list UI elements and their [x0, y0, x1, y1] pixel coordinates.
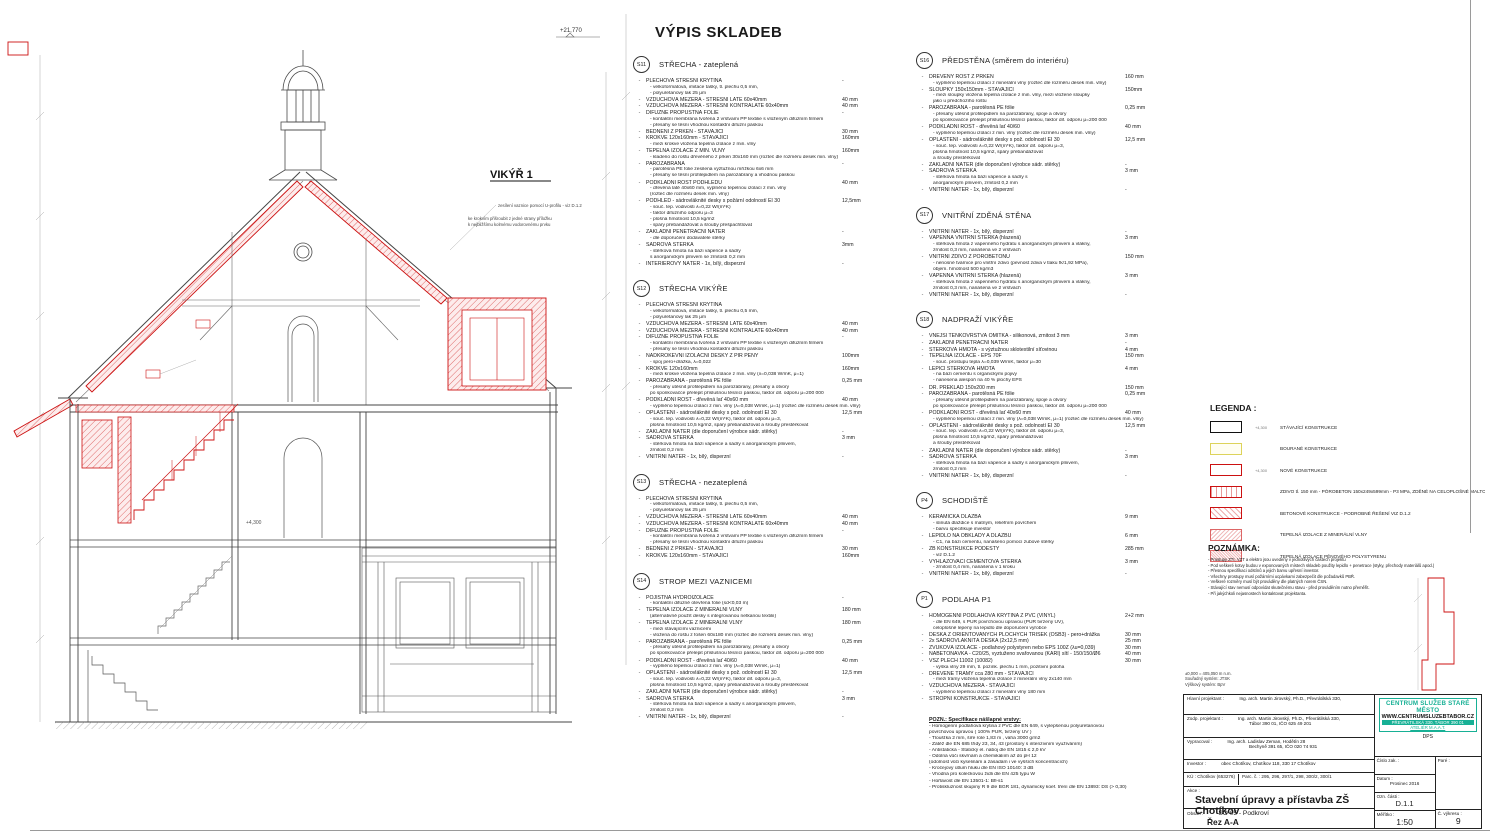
- item-label: DŘ. PŘEKLAD 150x200 mm: [929, 385, 1125, 392]
- item-dash: -: [916, 333, 929, 340]
- logo-frame: CENTRUM SLUŽEB STARÉ MĚSTO WWW.CENTRUMSL…: [1379, 698, 1477, 732]
- composition-item: -ZÁKLADNÍ NÁTĚR (dle doporučení výrobce …: [916, 162, 1208, 169]
- composition-item: -OPLÁŠTĚNÍ - sádrovláknité desky s pož. …: [916, 137, 1208, 144]
- composition-item: -VNITŘNÍ NÁTĚR - 1x, bílý, disperzní-: [916, 571, 1208, 578]
- composition-item: -VZDUCHOVÁ MEZERA - STŘEŠNÍ LATĚ 60x40mm…: [633, 321, 925, 328]
- composition-item: -PODKLADNÍ ROŠT - dřevěná lať 40x60 mm40…: [916, 410, 1208, 417]
- composition-header: S11STŘECHA - zateplená: [633, 56, 925, 73]
- cislo-label: Číslo zak. :: [1377, 758, 1400, 763]
- row-investor: Investor : obec Chotíkov, Chotíkov 118, …: [1184, 760, 1374, 774]
- datum-line-3: Výškový systém: BpV: [1185, 682, 1232, 687]
- composition-item: -PODHLED - sádrovláknité desky s požární…: [633, 198, 925, 205]
- composition-item: -VZDUCHOVÁ MEZERA - STŘEŠNÍ LATĚ 60x40mm…: [633, 97, 925, 104]
- logo-dps: DPS: [1379, 734, 1477, 740]
- item-value: 12,5 mm: [842, 670, 925, 677]
- composition-item: -PODKLADNÍ ROŠT - dřevěná lať 40/6040 mm: [633, 658, 925, 665]
- item-label: NADKROKEVNÍ IZOLAČNÍ DESKY Z PIR PĚNY: [646, 353, 842, 360]
- item-value: -: [1125, 448, 1208, 455]
- item-dash: -: [916, 613, 929, 620]
- compositions-column-2: S16PŘEDSTĚNA (směrem do interiéru)-DŘEVĚ…: [916, 52, 1208, 791]
- item-value: -: [1125, 571, 1208, 578]
- item-value: 4 mm: [1125, 347, 1208, 354]
- legend-swatch-existing: [1210, 421, 1242, 433]
- composition-header: S13STŘECHA - nezateplená: [633, 474, 925, 491]
- item-value: 0,25 mm: [842, 378, 925, 385]
- item-value: -: [842, 595, 925, 602]
- item-value: 40 mm: [1125, 410, 1208, 417]
- item-dash: -: [916, 229, 929, 236]
- svg-text:+21,770: +21,770: [560, 28, 583, 34]
- pare-cell: Paré :: [1436, 757, 1481, 810]
- item-label: ZÁKLADNÍ NÁTĚR (dle doporučení výrobce s…: [646, 689, 842, 696]
- item-value: 160mm: [842, 148, 925, 155]
- legend-swatch-concrete: [1210, 507, 1242, 519]
- item-value: 3 mm: [1125, 333, 1208, 340]
- item-dash: -: [916, 137, 929, 144]
- item-value: 40 mm: [842, 521, 925, 528]
- item-dash: -: [916, 448, 929, 455]
- item-dash: -: [633, 198, 646, 205]
- item-value: 160 mm: [1125, 74, 1208, 81]
- item-value: 180 mm: [842, 607, 925, 614]
- legend-item: ZDIVO tl. 150 mm - PÓROBETON 150x249x599…: [1210, 486, 1485, 498]
- composition-item: -KROKVE 120x160mm - STÁVAJÍCÍ160mm: [633, 135, 925, 142]
- composition-item: -ZÁKLADNÍ NÁTĚR (dle doporučení výrobce …: [633, 689, 925, 696]
- item-label: VNITŘNÍ NÁTĚR - 1x, bílý, disperzní: [929, 187, 1125, 194]
- item-dash: -: [633, 135, 646, 142]
- item-dash: -: [633, 103, 646, 110]
- item-value: 12,5 mm: [1125, 423, 1208, 430]
- composition-item: -PODKLADNÍ ROŠT - dřevěná lať 40/6040 mm: [916, 124, 1208, 131]
- item-dash: -: [916, 473, 929, 480]
- composition-S16: S16PŘEDSTĚNA (směrem do interiéru)-DŘEVĚ…: [916, 52, 1208, 194]
- item-value: 0,25 mm: [842, 639, 925, 646]
- composition-item: -NADKROKEVNÍ IZOLAČNÍ DESKY Z PIR PĚNY10…: [633, 353, 925, 360]
- legend-label: NOVÉ KONSTRUKCE: [1280, 468, 1327, 473]
- item-label: VNITŘNÍ NÁTĚR - 1x, bílý, disperzní: [929, 292, 1125, 299]
- item-dash: -: [633, 714, 646, 721]
- item-value: 40 mm: [842, 103, 925, 110]
- item-dash: -: [916, 571, 929, 578]
- item-dash: -: [916, 683, 929, 690]
- item-dash: -: [633, 639, 646, 646]
- item-value: -: [1125, 292, 1208, 299]
- composition-badge: S16: [916, 52, 933, 69]
- composition-item: -TEPELNÁ IZOLACE Z MINERÁLNÍ VLNY180 mm: [633, 620, 925, 627]
- item-label: BEDNĚNÍ Z PRKEN - STÁVAJÍCÍ: [646, 546, 842, 553]
- obsah-value: SO 05 - Podkroví: [1218, 810, 1269, 817]
- legend-item: BOURANÉ KONSTRUKCE: [1210, 443, 1485, 455]
- item-dash: -: [633, 607, 646, 614]
- composition-item: -SÁDROVÁ STĚRKA3 mm: [633, 435, 925, 442]
- dormer: [448, 298, 546, 390]
- composition-item: -DIFÚZNĚ PROPUSTNÁ FOLIE-: [633, 334, 925, 341]
- item-label: SÁDROVÁ STĚRKA: [646, 435, 842, 442]
- item-label: PODHLED - sádrovláknité desky s požární …: [646, 198, 842, 205]
- composition-item: -VZDUCHOVÁ MEZERA - STŘEŠNÍ KONTRALATĚ 6…: [633, 521, 925, 528]
- item-dash: -: [916, 546, 929, 553]
- item-dash: -: [916, 410, 929, 417]
- legend-item: BETONOVÉ KONSTRUKCE - PODROBNÉ ŘEŠENÍ VI…: [1210, 507, 1485, 519]
- datum-info: ±0,000 = 405,050 m n.m. Souřadný systém:…: [1185, 671, 1232, 687]
- item-value: 40 mm: [842, 397, 925, 404]
- composition-item: -PAROZÁBRANA - parotěsná PE fólie0,25 mm: [916, 105, 1208, 112]
- item-value: -: [842, 454, 925, 461]
- parc-label: Parc. č. :: [1242, 774, 1260, 779]
- composition-item: -BEDNĚNÍ Z PRKEN - STÁVAJÍCÍ30 mm: [633, 129, 925, 136]
- item-label: ZÁKLADNÍ NÁTĚR (dle doporučení výrobce s…: [646, 429, 842, 436]
- composition-name: STROP MEZI VAZNICEMI: [659, 577, 752, 586]
- composition-item: -VNITŘNÍ ZDIVO Z PÓROBETONU150 mm: [916, 254, 1208, 261]
- composition-item: -ZÁKLADNÍ NÁTĚR (dle doporučení výrobce …: [633, 429, 925, 436]
- composition-item: -VZDUCHOVÁ MEZERA - STŘEŠNÍ KONTRALATĚ 6…: [633, 103, 925, 110]
- item-label: VNITŘNÍ NÁTĚR - 1x, bílý, disperzní: [929, 229, 1125, 236]
- item-label: PLECHOVÁ STŘEŠNÍ KRYTINA: [646, 78, 842, 85]
- item-label: VYHLAZOVACÍ CEMENTOVÁ STĚRKA: [929, 559, 1125, 566]
- item-dash: -: [916, 651, 929, 658]
- item-dash: -: [916, 632, 929, 639]
- item-label: VÁPENNÁ VNITŘNÍ STĚRKA (hlazená): [929, 273, 1125, 280]
- item-dash: -: [916, 671, 929, 678]
- item-value: 9 mm: [1125, 514, 1208, 521]
- vypracoval-value-2: Bechyně 391 65, IČO 020 74 931: [1249, 744, 1371, 749]
- composition-item: -SÁDROVÁ STĚRKA3 mm: [916, 454, 1208, 461]
- item-label: PODKLADNÍ ROŠT - dřevěná lať 40/60: [929, 124, 1125, 131]
- composition-name: NADPRAŽÍ VIKÝŘE: [942, 315, 1013, 324]
- item-dash: -: [633, 528, 646, 535]
- composition-item: -POJISTNÁ HYDROIZOLACE-: [633, 595, 925, 602]
- composition-header: P1PODLAHA P1: [916, 591, 1208, 608]
- composition-item: -VNITŘNÍ NÁTĚR - 1x, bílý, disperzní-: [633, 454, 925, 461]
- page-title: VÝPIS SKLADEB: [655, 24, 782, 41]
- composition-item: -ŽB KONSTRUKCE PODESTY285 mm: [916, 546, 1208, 553]
- item-dash: -: [633, 378, 646, 385]
- row-hlavni-projektant: Hlavní projektant : Ing. arch. Martin Ji…: [1184, 695, 1374, 715]
- item-value: 150 mm: [1125, 385, 1208, 392]
- item-dash: -: [633, 110, 646, 117]
- legend-swatch-aerated: [1210, 486, 1242, 498]
- composition-item: -HOMOGENNÍ PODLAHOVÁ KRYTINA Z PVC (VINY…: [916, 613, 1208, 620]
- item-dash: -: [633, 435, 646, 442]
- item-value: 6 mm: [1125, 533, 1208, 540]
- item-value: 40 mm: [1125, 651, 1208, 658]
- item-label: PODKLADNÍ ROŠT PODHLEDU: [646, 180, 842, 187]
- floors: [55, 540, 572, 722]
- composition-item: -VZDUCHOVÁ MEZERA - STŘEŠNÍ LATĚ 60x40mm…: [633, 514, 925, 521]
- item-label: VZDUCHOVÁ MEZERA - STŘEŠNÍ KONTRALATĚ 60…: [646, 521, 842, 528]
- composition-header: P4SCHODIŠTĚ: [916, 492, 1208, 509]
- item-label: PLECHOVÁ STŘEŠNÍ KRYTINA: [646, 302, 842, 309]
- p1-note-line: - Protiskluznost skupiny R 9 dle BGR 181…: [929, 785, 1208, 791]
- item-dash: -: [916, 124, 929, 131]
- composition-name: STŘECHA - zateplená: [659, 60, 738, 69]
- item-label: SÁDROVÁ STĚRKA: [929, 168, 1125, 175]
- composition-item: -LEPÍCÍ STĚRKOVÁ HMOTA4 mm: [916, 366, 1208, 373]
- composition-item: -SÁDROVÁ STĚRKA3 mm: [916, 168, 1208, 175]
- item-value: 160mm: [842, 366, 925, 373]
- item-dash: -: [633, 328, 646, 335]
- facade-panels: [362, 548, 556, 712]
- item-label: STROPNÍ KONSTRUKCE - STÁVAJÍCÍ: [929, 696, 1125, 703]
- composition-item: -LEPIDLO NA OBKLADY A DLAŽBU6 mm: [916, 533, 1208, 540]
- hlavni-value: Ing. arch. Martin Jirovský, Ph.D., Převr…: [1239, 696, 1341, 701]
- row-obsah: Obsah : SO 05 - Podkroví Řez A-A: [1184, 809, 1374, 828]
- legend-label: STÁVAJÍCÍ KONSTRUKCE: [1280, 425, 1337, 430]
- svg-text:k nejbližšímu kolmému vodorovn: k nejbližšímu kolmému vodorovnému prvku: [468, 222, 551, 227]
- composition-item: -INTERIÉROVÝ NÁTĚR - 1x, bílý, disperzní…: [633, 261, 925, 268]
- item-label: LEPIDLO NA OBKLADY A DLAŽBU: [929, 533, 1125, 540]
- item-label: PODKLADNÍ ROŠT - dřevěná lať 40x60 mm: [646, 397, 842, 404]
- item-value: 3 mm: [1125, 273, 1208, 280]
- item-label: PAROZÁBRANA - parotěsná PE fólie: [929, 105, 1125, 112]
- item-value: -: [842, 261, 925, 268]
- item-dash: -: [633, 696, 646, 703]
- title-block: Hlavní projektant : Ing. arch. Martin Ji…: [1183, 694, 1482, 829]
- svg-text:VIKÝŘ 1: VIKÝŘ 1: [490, 168, 533, 181]
- item-dash: -: [916, 105, 929, 112]
- item-label: KROKVE 120x160mm - STÁVAJÍCÍ: [646, 135, 842, 142]
- item-dash: -: [916, 533, 929, 540]
- item-value: 3mm: [842, 242, 925, 249]
- composition-item: -DŘ. PŘEKLAD 150x200 mm150 mm: [916, 385, 1208, 392]
- new-staircase: [82, 404, 238, 523]
- composition-item: -DŘEVĚNÝ ROŠT Z PRKEN160 mm: [916, 74, 1208, 81]
- legend-label: TEPELNÁ IZOLACE Z MINERÁLNÍ VLNY: [1280, 532, 1367, 537]
- title-block-right: CENTRUM SLUŽEB STARÉ MĚSTO WWW.CENTRUMSL…: [1375, 695, 1481, 828]
- item-dash: -: [633, 521, 646, 528]
- ku-label: KÚ :: [1187, 774, 1196, 779]
- item-label: ZVUKOVÁ IZOLACE - podlahový polystyren n…: [929, 645, 1125, 652]
- item-value: -: [842, 161, 925, 168]
- item-label: NABETONÁVKA - C20/25, vyztuženo svařovan…: [929, 651, 1125, 658]
- legend-label: ZDIVO tl. 150 mm - PÓROBETON 150x249x599…: [1280, 489, 1485, 494]
- elevation-mark-top: +21,770: [556, 28, 600, 37]
- composition-item: -TEPELNÁ IZOLACE - EPS 70F150 mm: [916, 353, 1208, 360]
- item-label: VÁPENNÁ VNITŘNÍ STĚRKA (hlazená): [929, 235, 1125, 242]
- item-value: -: [842, 229, 925, 236]
- elevation-mark-mid: +4,300: [246, 520, 262, 526]
- item-label: DŘEVĚNÉ TRÁMY cca 280 mm - STÁVAJÍCÍ: [929, 671, 1125, 678]
- item-label: TEPELNÁ IZOLACE Z MINERÁLNÍ VLNY: [646, 607, 842, 614]
- item-label: 2x SÁDROVLÁKNITÁ DESKA (2x12,5 mm): [929, 638, 1125, 645]
- item-label: ŽB KONSTRUKCE PODESTY: [929, 546, 1125, 553]
- composition-item: -OPLÁŠTĚNÍ - sádrovláknité desky s pož. …: [916, 423, 1208, 430]
- composition-item: -PAROZÁBRANA - parotěsná PE fólie0,25 mm: [633, 639, 925, 646]
- item-dash: -: [633, 689, 646, 696]
- item-dash: -: [916, 454, 929, 461]
- composition-item: -PAROZÁBRANA - parotěsná PE fólie0,25 mm: [633, 378, 925, 385]
- item-label: TEPELNÁ IZOLACE - EPS 70F: [929, 353, 1125, 360]
- item-dash: -: [633, 496, 646, 503]
- composition-name: SCHODIŠTĚ: [942, 496, 988, 505]
- item-dash: -: [633, 78, 646, 85]
- composition-badge: S12: [633, 280, 650, 297]
- item-label: HOMOGENNÍ PODLAHOVÁ KRYTINA Z PVC (VINYL…: [929, 613, 1125, 620]
- composition-item: -VNITŘNÍ NÁTĚR - 1x, bílý, disperzní-: [916, 187, 1208, 194]
- item-label: DŘEVĚNÝ ROŠT Z PRKEN: [929, 74, 1125, 81]
- composition-item: -DIFÚZNĚ PROPUSTNÁ FOLIE-: [633, 110, 925, 117]
- akce-label: Akce :: [1187, 788, 1200, 793]
- item-dash: -: [916, 366, 929, 373]
- title-block-left: Hlavní projektant : Ing. arch. Martin Ji…: [1184, 695, 1375, 828]
- meritko-value: 1:50: [1377, 817, 1433, 827]
- item-label: PAROZÁBRANA - parotěsná PE fólie: [929, 391, 1125, 398]
- composition-item: -DIFÚZNĚ PROPUSTNÁ FOLIE-: [633, 528, 925, 535]
- item-dash: -: [916, 254, 929, 261]
- composition-badge: S17: [916, 207, 933, 224]
- composition-S12: S12STŘECHA VIKÝŘE-PLECHOVÁ STŘEŠNÍ KRYTI…: [633, 280, 925, 460]
- item-value: 3 mm: [842, 696, 925, 703]
- composition-badge: S11: [633, 56, 650, 73]
- item-dash: -: [916, 168, 929, 175]
- item-dash: -: [916, 162, 929, 169]
- arched-opening: [284, 438, 322, 538]
- item-value: 100mm: [842, 353, 925, 360]
- sheet-frame-bottom: [30, 830, 1490, 831]
- composition-S17: S17VNITŘNÍ ZDĚNÁ STĚNA-VNITŘNÍ NÁTĚR - 1…: [916, 207, 1208, 299]
- item-value: 3 mm: [1125, 168, 1208, 175]
- legend-title: LEGENDA :: [1210, 403, 1485, 413]
- row-akce: Akce : Stavební úpravy a přístavba ZŠ Ch…: [1184, 787, 1374, 809]
- item-label: SLOUPKY 150x150mm - STÁVAJÍCÍ: [929, 87, 1125, 94]
- svg-text:zesílení vaznice pomocí U-prof: zesílení vaznice pomocí U-profilu - viz …: [498, 203, 582, 208]
- item-dash: -: [916, 235, 929, 242]
- item-dash: -: [633, 242, 646, 249]
- zodp-label: Zodp. projektant :: [1187, 716, 1223, 721]
- item-value: -: [1125, 340, 1208, 347]
- item-dash: -: [916, 353, 929, 360]
- item-label: VNITŘNÍ NÁTĚR - 1x, bílý, disperzní: [646, 714, 842, 721]
- item-value: -: [842, 334, 925, 341]
- item-dash: -: [633, 148, 646, 155]
- pare-label: Paré :: [1438, 758, 1450, 763]
- section-cut-mark: [8, 42, 28, 55]
- item-label: ZÁKLADNÍ NÁTĚR (dle doporučení výrobce s…: [929, 162, 1125, 169]
- obsah-label: Obsah :: [1187, 811, 1203, 816]
- item-label: BEDNĚNÍ Z PRKEN - STÁVAJÍCÍ: [646, 129, 842, 136]
- item-label: PAROZÁBRANA - parotěsná PE fólie: [646, 378, 842, 385]
- ozn-value: D.1.1: [1377, 799, 1433, 808]
- composition-item: -ZÁKLADNÍ NÁTĚR (dle doporučení výrobce …: [916, 448, 1208, 455]
- item-label: VNITŘNÍ NÁTĚR - 1x, bílý, disperzní: [646, 454, 842, 461]
- item-dash: -: [633, 261, 646, 268]
- ku-cell: KÚ : Chotíkov (653276): [1187, 774, 1239, 785]
- item-dash: -: [633, 595, 646, 602]
- item-label: DIFÚZNĚ PROPUSTNÁ FOLIE: [646, 334, 842, 341]
- item-label: SÁDROVÁ STĚRKA: [646, 696, 842, 703]
- composition-badge: P4: [916, 492, 933, 509]
- legend-item: +4,300STÁVAJÍCÍ KONSTRUKCE: [1210, 421, 1485, 433]
- item-label: VZDUCHOVÁ MEZERA - STŘEŠNÍ KONTRALATĚ 60…: [646, 103, 842, 110]
- composition-item: -PLECHOVÁ STŘEŠNÍ KRYTINA-: [633, 78, 925, 85]
- item-value: 12,5mm: [842, 198, 925, 205]
- legend-elevation-mark: +4,300: [1242, 425, 1280, 430]
- parc-value: 295, 296, 297/1, 298, 300/2, 300/1: [1261, 774, 1331, 779]
- item-label: VNITŘNÍ ZDIVO Z PÓROBETONU: [929, 254, 1125, 261]
- composition-item: -OPLÁŠTĚNÍ - sádrovláknité desky s pož. …: [633, 410, 925, 417]
- row-zodp-projektant: Zodp. projektant : Ing. arch. Martin Jir…: [1184, 715, 1374, 738]
- item-value: 30 mm: [842, 546, 925, 553]
- rez-value: Řez A-A: [1207, 817, 1371, 827]
- composition-item: -SLOUPKY 150x150mm - STÁVAJÍCÍ150mm: [916, 87, 1208, 94]
- composition-S14: S14STROP MEZI VAZNICEMI-POJISTNÁ HYDROIZ…: [633, 573, 925, 721]
- item-label: KERAMICKÁ DLAŽBA: [929, 514, 1125, 521]
- item-dash: -: [916, 87, 929, 94]
- item-value: -: [1125, 162, 1208, 169]
- composition-name: VNITŘNÍ ZDĚNÁ STĚNA: [942, 211, 1031, 220]
- composition-name: PŘEDSTĚNA (směrem do interiéru): [942, 56, 1069, 65]
- item-value: 4 mm: [1125, 366, 1208, 373]
- item-value: 30 mm: [1125, 645, 1208, 652]
- composition-item: -SÁDROVÁ STĚRKA3mm: [633, 242, 925, 249]
- composition-item: -PLECHOVÁ STŘEŠNÍ KRYTINA: [633, 496, 925, 503]
- svg-text:ke krokvím přišroubit z jedné: ke krokvím přišroubit z jedné strany pří…: [468, 216, 552, 221]
- item-label: PODKLADNÍ ROŠT - dřevěná lať 40x60 mm: [929, 410, 1125, 417]
- composition-item: -VZDUCHOVÁ MEZERA - STÁVAJÍCÍ: [916, 683, 1208, 690]
- item-value: 40 mm: [842, 97, 925, 104]
- walls: [70, 388, 556, 722]
- item-label: DIFÚZNĚ PROPUSTNÁ FOLIE: [646, 110, 842, 117]
- item-dash: -: [633, 321, 646, 328]
- item-value: -: [842, 528, 925, 535]
- section-drawing: +21,770: [0, 0, 645, 835]
- item-value: 2+2 mm: [1125, 613, 1208, 620]
- p1-note: POZN.: Specifikace nášlapné vrstvy:- Hom…: [929, 716, 1208, 791]
- meritko-cell: Měřítko : 1:50: [1375, 811, 1435, 828]
- hlavni-label: Hlavní projektant :: [1187, 696, 1224, 701]
- item-dash: -: [633, 161, 646, 168]
- item-value: 150mm: [1125, 87, 1208, 94]
- item-value: 160mm: [842, 553, 925, 560]
- item-label: OPLÁŠTĚNÍ - sádrovláknité desky s pož. o…: [929, 423, 1125, 430]
- item-value: 40 mm: [842, 321, 925, 328]
- item-value: 40 mm: [842, 328, 925, 335]
- new-roof-bands: [14, 181, 447, 437]
- item-label: SÁDROVÁ STĚRKA: [929, 454, 1125, 461]
- item-label: VZDUCHOVÁ MEZERA - STÁVAJÍCÍ: [929, 683, 1125, 690]
- legend-swatch-demolish: [1210, 443, 1242, 455]
- composition-header: S14STROP MEZI VAZNICEMI: [633, 573, 925, 590]
- datum-value: Prosinec 2016: [1377, 781, 1433, 786]
- item-value: 40 mm: [842, 180, 925, 187]
- item-label: TEPELNÁ IZOLACE Z MIN. VLNY: [646, 148, 842, 155]
- composition-item: -STĚRKOVÁ HMOTA - s výztužnou sklotextil…: [916, 347, 1208, 354]
- item-dash: -: [633, 366, 646, 373]
- item-value: 285 mm: [1125, 546, 1208, 553]
- composition-item: -STROPNÍ KONSTRUKCE - STÁVAJÍCÍ: [916, 696, 1208, 703]
- item-label: VNITŘNÍ NÁTĚR - 1x, bílý, disperzní: [929, 473, 1125, 480]
- composition-item: -NABETONÁVKA - C20/25, vyztuženo svařova…: [916, 651, 1208, 658]
- composition-item: -PLECHOVÁ STŘEŠNÍ KRYTINA: [633, 302, 925, 309]
- item-value: 40 mm: [842, 514, 925, 521]
- composition-item: -ZÁKLADNÍ PENETRAČNÍ NÁTĚR-: [633, 229, 925, 236]
- item-label: INTERIÉROVÝ NÁTĚR - 1x, bílý, disperzní: [646, 261, 842, 268]
- datum-cell: Datum : Prosinec 2016: [1375, 775, 1435, 793]
- item-dash: -: [633, 620, 646, 627]
- composition-item: -VÁPENNÁ VNITŘNÍ STĚRKA (hlazená)3 mm: [916, 235, 1208, 242]
- composition-item: -VSŽ PLECH 11002 (10082)30 mm: [916, 658, 1208, 665]
- ku-value: Chotíkov (653276): [1197, 774, 1235, 779]
- item-dash: -: [916, 391, 929, 398]
- composition-item: -VNITŘNÍ NÁTĚR - 1x, bílý, disperzní-: [916, 229, 1208, 236]
- logo-name: CENTRUM SLUŽEB STARÉ MĚSTO: [1382, 700, 1474, 714]
- zodp-value-1: Ing. arch. Martin Jirovský, Ph.D., Převr…: [1238, 716, 1340, 721]
- existing-staircase: [158, 556, 232, 634]
- legend-swatch-new: [1210, 464, 1242, 476]
- composition-item: -DŘEVĚNÉ TRÁMY cca 280 mm - STÁVAJÍCÍ: [916, 671, 1208, 678]
- composition-header: S12STŘECHA VIKÝŘE: [633, 280, 925, 297]
- legend-items: +4,300STÁVAJÍCÍ KONSTRUKCEBOURANÉ KONSTR…: [1210, 421, 1485, 562]
